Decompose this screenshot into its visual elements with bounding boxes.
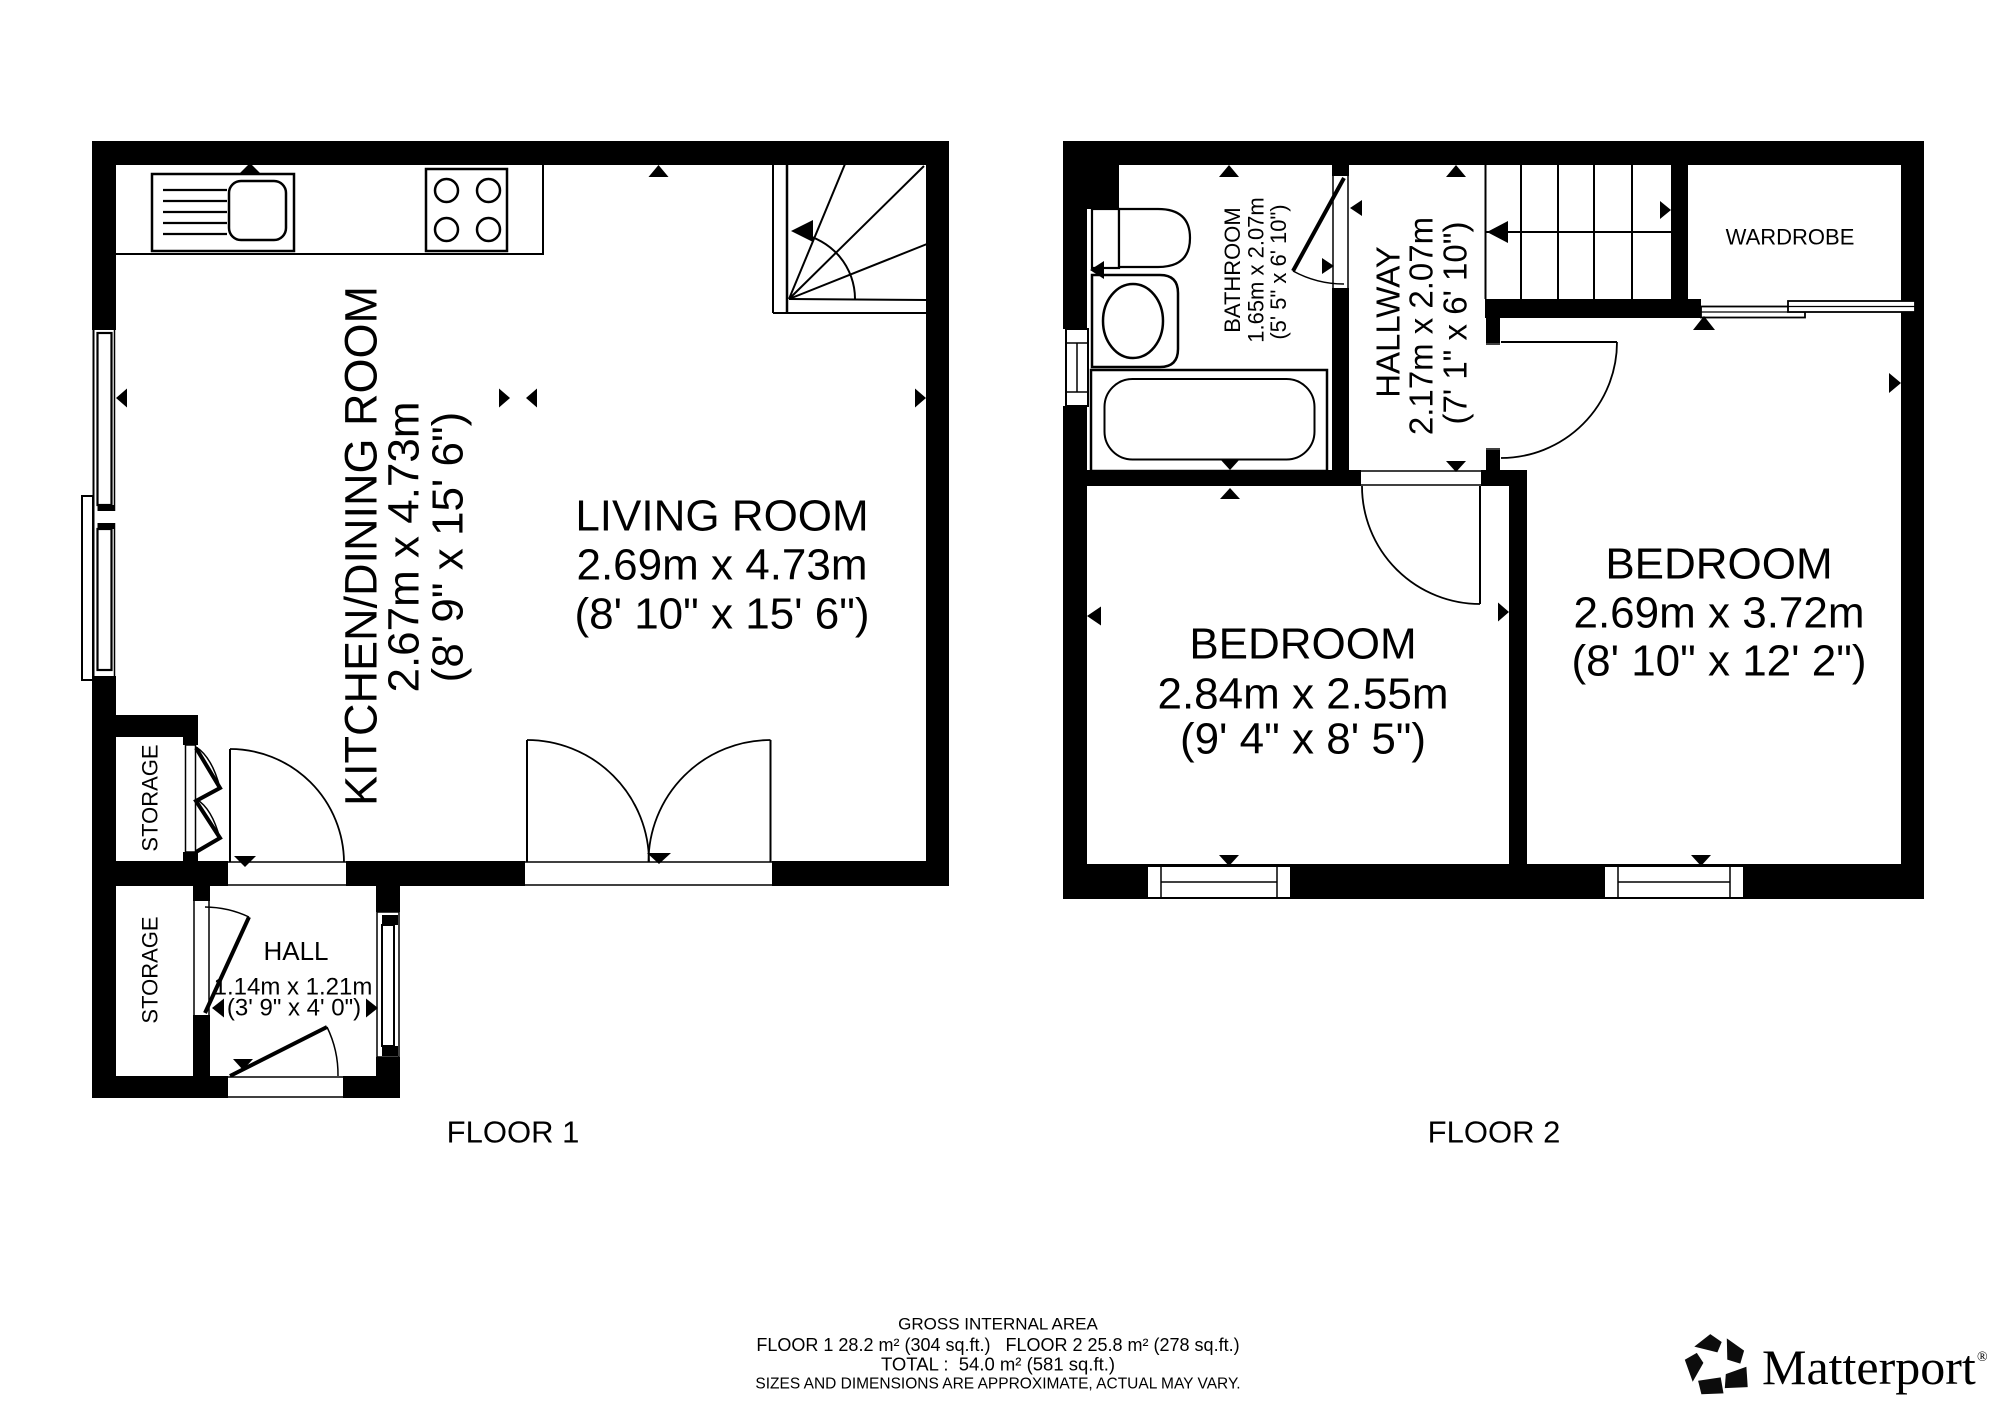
svg-text:2.17m x 2.07m: 2.17m x 2.07m [1403,217,1440,435]
svg-text:BATHROOM: BATHROOM [1220,207,1245,332]
svg-text:STORAGE: STORAGE [138,916,163,1023]
svg-text:WARDROBE: WARDROBE [1726,225,1855,250]
svg-text:(5' 5" x 6' 10"): (5' 5" x 6' 10") [1266,204,1291,339]
svg-text:SIZES AND DIMENSIONS ARE APPRO: SIZES AND DIMENSIONS ARE APPROXIMATE, AC… [755,1376,1240,1393]
svg-text:FLOOR 1 28.2 m² (304 sq.ft.): FLOOR 1 28.2 m² (304 sq.ft.) FLOOR 2 25.… [756,1335,1239,1355]
svg-text:2.69m x 3.72m: 2.69m x 3.72m [1573,589,1864,638]
svg-text:LIVING ROOM: LIVING ROOM [575,492,868,541]
svg-text:(3' 9" x 4' 0"): (3' 9" x 4' 0") [227,995,361,1022]
svg-text:2.84m x 2.55m: 2.84m x 2.55m [1157,670,1448,719]
svg-text:1.65m x 2.07m: 1.65m x 2.07m [1243,197,1268,343]
svg-text:(8' 9" x 15' 6"): (8' 9" x 15' 6") [424,412,473,683]
svg-text:BEDROOM: BEDROOM [1189,620,1416,669]
svg-text:(8' 10" x 15' 6"): (8' 10" x 15' 6") [574,590,869,639]
svg-text:HALLWAY: HALLWAY [1370,246,1407,398]
svg-text:(7' 1" x 6' 10"): (7' 1" x 6' 10") [1437,222,1474,425]
svg-text:HALL: HALL [263,936,328,966]
svg-text:TOTAL : 54.0 m² (581 sq.ft.): TOTAL : 54.0 m² (581 sq.ft.) [881,1354,1115,1375]
svg-text:BEDROOM: BEDROOM [1605,540,1832,589]
svg-text:2.67m x 4.73m: 2.67m x 4.73m [380,401,429,692]
svg-text:(9' 4" x 8' 5"): (9' 4" x 8' 5") [1180,715,1426,764]
svg-text:GROSS INTERNAL AREA: GROSS INTERNAL AREA [898,1315,1098,1334]
svg-text:FLOOR 2: FLOOR 2 [1428,1115,1561,1150]
svg-text:2.69m x 4.73m: 2.69m x 4.73m [576,541,867,590]
svg-text:STORAGE: STORAGE [138,744,163,851]
svg-text:Matterport: Matterport [1762,1339,1976,1395]
svg-text:FLOOR 1: FLOOR 1 [447,1115,580,1150]
svg-text:®: ® [1977,1350,1988,1365]
svg-text:(8' 10" x 12' 2"): (8' 10" x 12' 2") [1571,637,1866,686]
